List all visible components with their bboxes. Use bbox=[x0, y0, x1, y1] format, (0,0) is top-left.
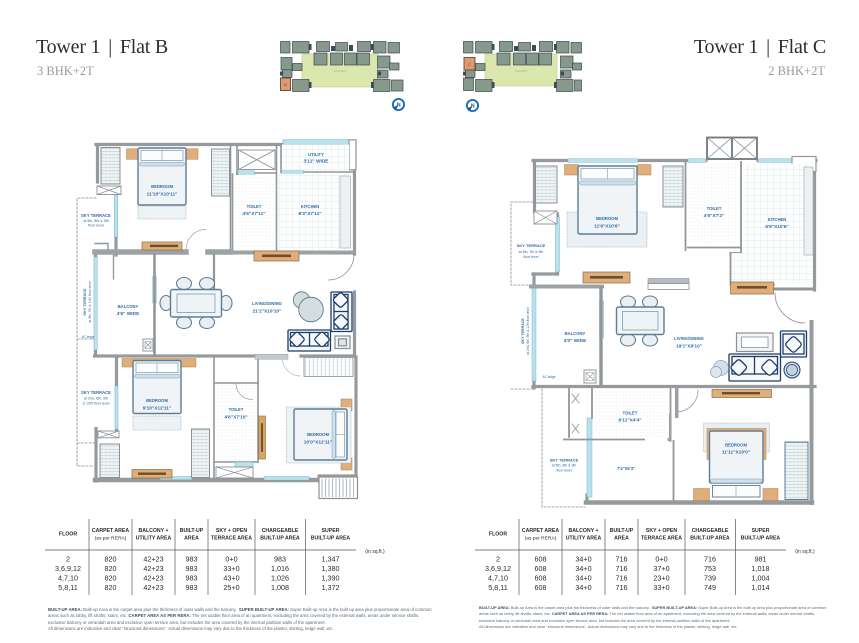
svg-text:21'2"X10'10": 21'2"X10'10" bbox=[253, 309, 282, 315]
svg-text:KITCHEN: KITCHEN bbox=[301, 204, 320, 209]
svg-text:42+23: 42+23 bbox=[143, 564, 163, 573]
svg-text:BALCONY: BALCONY bbox=[118, 304, 139, 309]
svg-text:23+0: 23+0 bbox=[653, 574, 669, 583]
svg-text:SUPER: SUPER bbox=[752, 528, 770, 534]
svg-text:UTILITY: UTILITY bbox=[308, 152, 324, 157]
svg-text:43+0: 43+0 bbox=[223, 574, 239, 583]
svg-text:820: 820 bbox=[105, 583, 117, 592]
svg-text:1,380: 1,380 bbox=[322, 564, 340, 573]
svg-text:at 5th, 8th & 9th: at 5th, 8th & 9th bbox=[552, 464, 577, 468]
svg-text:34+0: 34+0 bbox=[575, 574, 591, 583]
svg-text:floor level: floor level bbox=[88, 224, 104, 228]
svg-text:TERRACE AREA: TERRACE AREA bbox=[641, 536, 682, 542]
svg-text:716: 716 bbox=[616, 564, 628, 573]
svg-text:TERRACE AREA: TERRACE AREA bbox=[211, 536, 252, 542]
svg-text:(as per RERA): (as per RERA) bbox=[95, 536, 127, 542]
svg-text:4'6"X7'10": 4'6"X7'10" bbox=[224, 415, 247, 421]
svg-text:GARDEN: GARDEN bbox=[515, 69, 528, 73]
svg-text:& 12th floor level: & 12th floor level bbox=[83, 402, 110, 406]
svg-text:BALCONY +: BALCONY + bbox=[568, 528, 598, 534]
svg-text:N: N bbox=[471, 103, 475, 109]
svg-text:UTILITY AREA: UTILITY AREA bbox=[136, 536, 172, 542]
svg-text:983: 983 bbox=[186, 564, 198, 573]
svg-text:981: 981 bbox=[755, 555, 767, 564]
svg-text:749: 749 bbox=[704, 583, 716, 592]
svg-text:4,7,10: 4,7,10 bbox=[58, 574, 78, 583]
svg-text:11'11"X10'0": 11'11"X10'0" bbox=[722, 450, 750, 456]
svg-text:37+0: 37+0 bbox=[653, 564, 669, 573]
svg-text:CHARGEABLE: CHARGEABLE bbox=[262, 528, 299, 534]
svg-text:739: 739 bbox=[704, 574, 716, 583]
svg-text:753: 753 bbox=[704, 564, 716, 573]
svg-text:34+0: 34+0 bbox=[575, 555, 591, 564]
svg-text:at 4th, 7th & 9th: at 4th, 7th & 9th bbox=[519, 250, 544, 254]
svg-text:42+23: 42+23 bbox=[143, 574, 163, 583]
svg-text:SKY + OPEN: SKY + OPEN bbox=[216, 528, 247, 534]
svg-text:GARDEN: GARDEN bbox=[334, 69, 347, 73]
svg-text:TOILET: TOILET bbox=[229, 407, 244, 412]
svg-text:1,026: 1,026 bbox=[271, 574, 289, 583]
svg-text:983: 983 bbox=[186, 574, 198, 583]
svg-text:0+0: 0+0 bbox=[225, 555, 237, 564]
svg-text:716: 716 bbox=[704, 555, 716, 564]
svg-text:983: 983 bbox=[274, 555, 286, 564]
svg-text:BALCONY +: BALCONY + bbox=[138, 528, 168, 534]
svg-text:FLOOR: FLOOR bbox=[489, 532, 507, 538]
svg-text:B: B bbox=[284, 82, 287, 87]
svg-text:1,004: 1,004 bbox=[752, 574, 770, 583]
svg-text:at 4th, 7th & 10th floor level: at 4th, 7th & 10th floor level bbox=[88, 281, 92, 323]
svg-text:820: 820 bbox=[105, 555, 117, 564]
svg-text:983: 983 bbox=[186, 555, 198, 564]
svg-text:C: C bbox=[468, 62, 471, 67]
svg-text:CARPET AREA: CARPET AREA bbox=[522, 528, 560, 534]
svg-text:LIVING/DINING: LIVING/DINING bbox=[252, 301, 282, 306]
svg-text:BEDROOM: BEDROOM bbox=[151, 184, 173, 189]
svg-text:BUILT-UP: BUILT-UP bbox=[610, 528, 634, 534]
svg-text:TOILET: TOILET bbox=[247, 204, 262, 209]
svg-text:(in sq.ft.): (in sq.ft.) bbox=[795, 549, 815, 555]
svg-text:8'3"X7'11": 8'3"X7'11" bbox=[298, 211, 321, 217]
svg-text:FLOOR: FLOOR bbox=[59, 532, 77, 538]
svg-text:7'4"X5'3": 7'4"X5'3" bbox=[617, 466, 635, 471]
svg-text:716: 716 bbox=[616, 583, 628, 592]
svg-text:10'0"X12'11": 10'0"X12'11" bbox=[304, 440, 332, 446]
svg-text:4'6"X7'11": 4'6"X7'11" bbox=[242, 211, 265, 217]
svg-text:BUILT-UP AREA: BUILT-UP AREA bbox=[260, 536, 300, 542]
svg-text:BUILT-UP: BUILT-UP bbox=[180, 528, 204, 534]
svg-text:1,008: 1,008 bbox=[271, 583, 289, 592]
svg-text:CHARGEABLE: CHARGEABLE bbox=[692, 528, 729, 534]
svg-text:1,014: 1,014 bbox=[752, 583, 770, 592]
svg-text:BEDROOM: BEDROOM bbox=[725, 443, 747, 448]
svg-text:TOILET: TOILET bbox=[707, 206, 722, 211]
svg-text:820: 820 bbox=[105, 564, 117, 573]
svg-text:1,347: 1,347 bbox=[322, 555, 340, 564]
svg-text:BEDROOM: BEDROOM bbox=[146, 398, 168, 403]
svg-text:9'10"X12'11": 9'10"X12'11" bbox=[143, 406, 171, 412]
svg-text:1,372: 1,372 bbox=[322, 583, 340, 592]
svg-text:4'6" WIDE: 4'6" WIDE bbox=[117, 311, 140, 317]
svg-text:1,016: 1,016 bbox=[271, 564, 289, 573]
svg-text:33+0: 33+0 bbox=[223, 564, 239, 573]
svg-text:at 5th, 8th & 9th: at 5th, 8th & 9th bbox=[83, 219, 108, 223]
svg-text:4'6"X7'2": 4'6"X7'2" bbox=[704, 213, 725, 219]
svg-text:2: 2 bbox=[496, 555, 500, 564]
svg-text:820: 820 bbox=[105, 574, 117, 583]
svg-text:5,8,11: 5,8,11 bbox=[488, 583, 507, 592]
svg-text:0+0: 0+0 bbox=[655, 555, 667, 564]
svg-text:UTILITY AREA: UTILITY AREA bbox=[566, 536, 602, 542]
svg-text:SKY TERRACE: SKY TERRACE bbox=[517, 243, 546, 248]
svg-text:BUILT-UP AREA: BUILT-UP AREA bbox=[690, 536, 730, 542]
svg-text:SUPER: SUPER bbox=[322, 528, 340, 534]
svg-text:N: N bbox=[397, 102, 401, 108]
svg-text:AREA: AREA bbox=[184, 536, 199, 542]
svg-text:33+0: 33+0 bbox=[653, 583, 669, 592]
svg-text:3,6,9,12: 3,6,9,12 bbox=[485, 564, 511, 573]
svg-text:716: 716 bbox=[616, 555, 628, 564]
svg-text:floor level: floor level bbox=[557, 469, 572, 473]
svg-text:11'10"X10'11": 11'10"X10'11" bbox=[147, 192, 178, 198]
svg-text:BUILT-UP AREA: BUILT-UP AREA bbox=[741, 536, 781, 542]
svg-text:TOILET: TOILET bbox=[623, 411, 638, 416]
svg-text:42+23: 42+23 bbox=[143, 555, 163, 564]
svg-text:SKY TERRACE: SKY TERRACE bbox=[83, 288, 87, 316]
svg-text:34+0: 34+0 bbox=[575, 583, 591, 592]
svg-text:5,8,11: 5,8,11 bbox=[58, 583, 77, 592]
svg-text:34+0: 34+0 bbox=[575, 564, 591, 573]
svg-text:SKY TERRACE: SKY TERRACE bbox=[550, 458, 579, 463]
svg-text:KITCHEN: KITCHEN bbox=[768, 217, 787, 222]
svg-text:SKY TERRACE: SKY TERRACE bbox=[521, 318, 525, 344]
svg-text:BALCONY: BALCONY bbox=[565, 331, 586, 336]
svg-text:19'1"X9'10": 19'1"X9'10" bbox=[676, 344, 702, 350]
svg-text:BUILT-UP AREA: BUILT-UP AREA bbox=[311, 536, 351, 542]
svg-text:BEDROOM: BEDROOM bbox=[307, 432, 329, 437]
svg-text:at 2nd, 6th, 9th & 12th floor: at 2nd, 6th, 9th & 12th floor level bbox=[526, 307, 530, 355]
svg-text:608: 608 bbox=[535, 564, 547, 573]
svg-text:AC ledge: AC ledge bbox=[81, 335, 94, 339]
svg-text:4,7,10: 4,7,10 bbox=[488, 574, 508, 583]
svg-text:716: 716 bbox=[616, 574, 628, 583]
svg-text:2: 2 bbox=[66, 555, 70, 564]
svg-text:SKY TERRACE: SKY TERRACE bbox=[81, 213, 111, 218]
svg-text:at 2nd, 6th, 9th: at 2nd, 6th, 9th bbox=[84, 397, 108, 401]
svg-text:42+23: 42+23 bbox=[143, 583, 163, 592]
svg-text:AC ledge: AC ledge bbox=[542, 375, 555, 379]
svg-text:608: 608 bbox=[535, 583, 547, 592]
svg-text:3,6,9,12: 3,6,9,12 bbox=[55, 564, 81, 573]
svg-text:LIVING/DINING: LIVING/DINING bbox=[674, 336, 704, 341]
svg-text:CARPET AREA: CARPET AREA bbox=[92, 528, 130, 534]
svg-text:1,390: 1,390 bbox=[322, 574, 340, 583]
svg-text:608: 608 bbox=[535, 574, 547, 583]
svg-text:(as per RERA): (as per RERA) bbox=[525, 536, 557, 542]
svg-text:6'8"X10'6": 6'8"X10'6" bbox=[765, 224, 788, 230]
svg-text:AREA: AREA bbox=[614, 536, 629, 542]
svg-text:BEDROOM: BEDROOM bbox=[596, 216, 618, 221]
svg-text:SKY TERRACE: SKY TERRACE bbox=[81, 390, 111, 395]
svg-text:4'0" WIDE: 4'0" WIDE bbox=[564, 338, 587, 344]
svg-text:3'11" WIDE: 3'11" WIDE bbox=[303, 159, 329, 165]
svg-text:1,018: 1,018 bbox=[752, 564, 770, 573]
svg-text:608: 608 bbox=[535, 555, 547, 564]
svg-text:floor level: floor level bbox=[524, 255, 539, 259]
svg-text:11'6"X10'6": 11'6"X10'6" bbox=[594, 224, 620, 230]
svg-text:(in sq.ft.): (in sq.ft.) bbox=[365, 549, 385, 555]
svg-text:SKY + OPEN: SKY + OPEN bbox=[646, 528, 677, 534]
svg-text:983: 983 bbox=[186, 583, 198, 592]
svg-text:25+0: 25+0 bbox=[223, 583, 239, 592]
svg-text:6'11"X4'4": 6'11"X4'4" bbox=[618, 418, 641, 424]
